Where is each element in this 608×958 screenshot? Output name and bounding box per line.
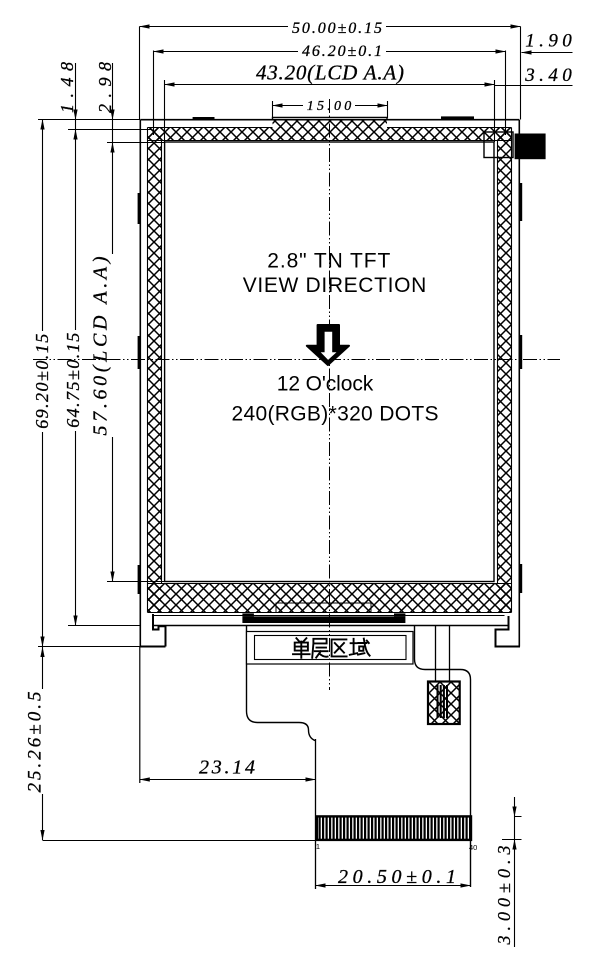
svg-text:1.90: 1.90 <box>525 30 572 51</box>
svg-text:1: 1 <box>316 842 320 851</box>
svg-text:57.60(LCD A.A): 57.60(LCD A.A) <box>90 256 112 435</box>
svg-text:46.20±0.1: 46.20±0.1 <box>302 43 382 60</box>
svg-text:69.20±0.15: 69.20±0.15 <box>32 334 52 429</box>
svg-text:64.75±0.15: 64.75±0.15 <box>63 333 83 428</box>
svg-text:15.00: 15.00 <box>307 99 352 114</box>
svg-text:23.14: 23.14 <box>199 757 255 779</box>
svg-text:2.8" TN TFT: 2.8" TN TFT <box>267 250 390 273</box>
svg-text:12 O'clock: 12 O'clock <box>277 372 374 395</box>
svg-text:25.26±0.5: 25.26±0.5 <box>25 692 46 793</box>
svg-text:40: 40 <box>469 843 477 852</box>
svg-text:240(RGB)*320 DOTS: 240(RGB)*320 DOTS <box>232 403 439 426</box>
svg-text:43.20(LCD A.A): 43.20(LCD A.A) <box>256 61 404 85</box>
svg-text:20.50±0.1: 20.50±0.1 <box>338 866 456 888</box>
svg-text:3.40: 3.40 <box>524 65 572 86</box>
svg-text:50.00±0.15: 50.00±0.15 <box>292 20 382 37</box>
svg-text:VIEW DIRECTION: VIEW DIRECTION <box>243 274 427 297</box>
